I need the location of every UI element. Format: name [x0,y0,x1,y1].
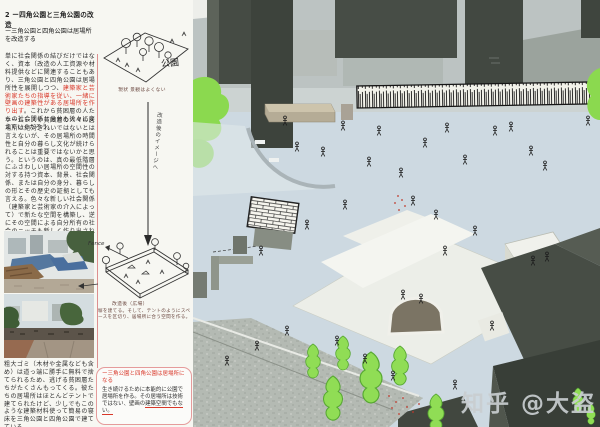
paragraph-2: ホームレスや貧困層の人々の居場所は絶対きれいではないとは言えないが、その居場所の… [5,117,95,244]
bubble-body: 生き続けるために本能的に公園で居場所を作る。その居場所は技術ではない、壁画の建築… [102,387,187,415]
paragraph-3: 粗大ゴミ（木材や金属なども含め）は道っ端に勝手に無料で捨てられるため、逃げる貧困… [4,361,94,427]
page-title: 2 ー四角公園と三角公園の改造 [5,9,95,29]
plaza-handwritten-note: 塀を建てる。そして、テントのようにスペースを区切り、居場所に合う空間を作る。 [98,309,191,322]
bubble-heading: ー三角公園と四角公園は居場所になる [102,371,187,385]
conclusion-bubble: ー三角公園と四角公園は居場所になる 生き続けるために本能的に公園で居場所を作る。… [96,367,192,425]
zhihu-watermark: 知乎 @大盗 [461,384,596,418]
fence-label: Fence [88,241,104,247]
model-photo-art [193,0,600,427]
park-label: 公園 [161,55,180,69]
section-subtitle: ー三角公園と四角公園は居場所を改造する [5,28,95,45]
model-aerial-photo: 知乎 @大盗 [193,0,600,427]
presentation-board: 2 ー四角公園と三角公園の改造 ー三角公園と四角公園は居場所を改造する 単に社会… [0,0,600,427]
park-caption: 現状 景観はよくない [98,86,186,93]
plaza-caption: 改造後（広場） [112,300,148,307]
